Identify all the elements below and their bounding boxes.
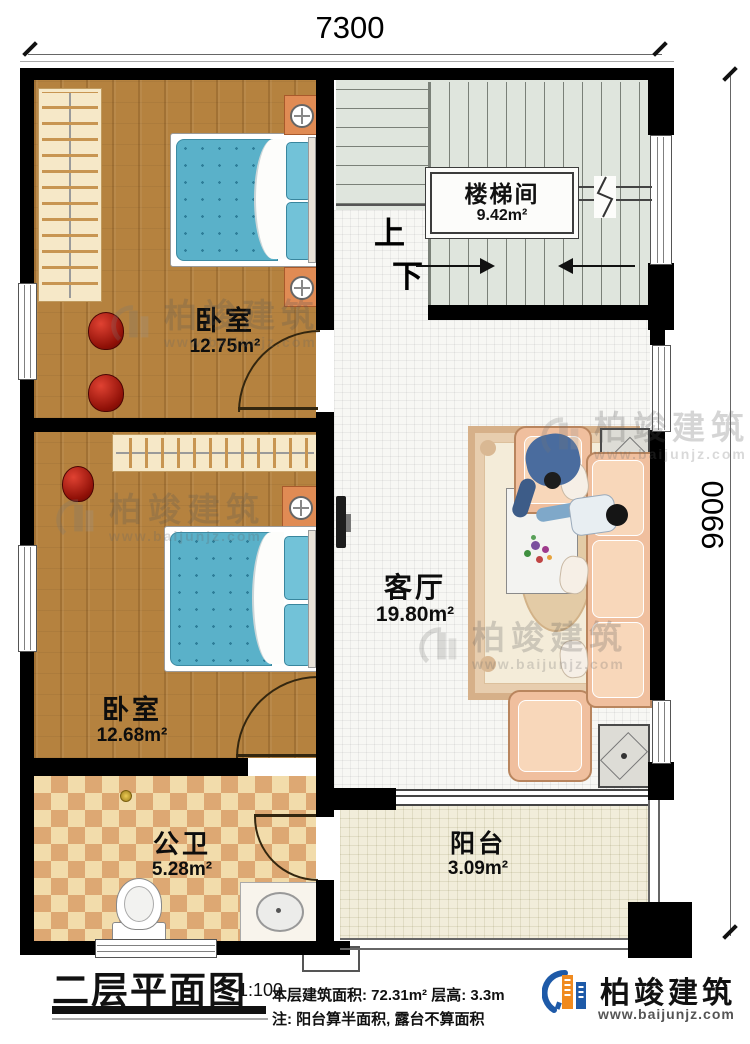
sliding-door xyxy=(396,789,648,806)
wall-pier xyxy=(648,762,674,800)
side-table xyxy=(598,724,650,788)
door-leaf xyxy=(236,754,316,757)
living-room-label: 客厅 19.80m² xyxy=(325,572,505,627)
armchair-seat xyxy=(518,700,582,772)
wardrobe xyxy=(112,434,318,472)
window xyxy=(650,135,672,265)
floorplan-canvas: 7300 9900 楼梯间 9.42m² 上 下 卧室 12 xyxy=(0,0,750,1044)
room-area: 12.75m² xyxy=(135,336,315,357)
side-table-center-dot xyxy=(621,753,627,759)
stool xyxy=(88,374,124,412)
room-area: 12.68m² xyxy=(42,725,222,746)
stair-direction-arrow-icon xyxy=(416,265,480,267)
stair-treads xyxy=(336,82,428,204)
stairwell-area: 9.42m² xyxy=(477,207,528,225)
room-area: 3.09m² xyxy=(388,858,568,879)
window xyxy=(18,283,37,380)
bed-sheet xyxy=(252,532,284,664)
room-area: 19.80m² xyxy=(325,603,505,627)
window xyxy=(652,345,671,432)
stair-landing-line xyxy=(336,204,430,206)
title-underline-thin xyxy=(52,1018,268,1020)
bed-headboard xyxy=(308,137,316,263)
window xyxy=(18,545,37,652)
floor-drain-icon xyxy=(120,790,132,802)
balcony-label: 阳台 3.09m² xyxy=(388,830,568,879)
stair-break-symbol-icon xyxy=(594,176,616,218)
lamp-icon xyxy=(290,276,314,300)
wall-segment xyxy=(20,68,34,283)
room-name: 公卫 xyxy=(92,830,272,859)
hanger-rail xyxy=(116,438,314,468)
stair-arrow-head-icon xyxy=(558,258,573,274)
column xyxy=(628,902,692,958)
wall-segment xyxy=(215,941,350,955)
window xyxy=(652,700,671,764)
flower-icon xyxy=(531,541,540,550)
wall-segment xyxy=(20,378,34,545)
sliding-door-track xyxy=(396,795,648,797)
wall-segment xyxy=(20,650,34,955)
dimension-width-label: 7300 xyxy=(280,10,420,46)
window xyxy=(95,939,217,958)
stool xyxy=(88,312,124,350)
build-area-info: 本层建筑面积: 72.31m² 层高: 3.3m xyxy=(272,984,505,1005)
wardrobe xyxy=(38,88,102,302)
bedroom-top-label: 卧室 12.75m² xyxy=(135,306,315,358)
carpet-rose-icon xyxy=(480,656,496,672)
door-leaf xyxy=(238,407,318,410)
build-area-note: 注: 阳台算半面积, 露台不算面积 xyxy=(272,1008,485,1029)
toilet-seat xyxy=(124,886,154,922)
room-name: 阳台 xyxy=(388,830,568,858)
brand-website: www.baijunjz.com xyxy=(598,1006,735,1022)
stool xyxy=(62,466,94,502)
wall-segment xyxy=(34,418,316,432)
wall-segment xyxy=(20,941,95,955)
room-name: 卧室 xyxy=(135,306,315,336)
wall-segment xyxy=(650,430,665,700)
hanger-rail xyxy=(42,92,98,298)
wall-segment xyxy=(20,68,674,80)
wall-segment xyxy=(428,305,652,320)
room-area: 5.28m² xyxy=(92,859,272,880)
wall-segment xyxy=(334,788,396,810)
stair-arrow-head-icon xyxy=(480,258,495,274)
stairwell-name: 楼梯间 xyxy=(465,181,540,207)
room-name: 卧室 xyxy=(42,695,222,725)
tv-bracket xyxy=(346,514,351,532)
stairwell-label-box: 楼梯间 9.42m² xyxy=(430,172,574,234)
bathroom-label: 公卫 5.28m² xyxy=(92,830,272,880)
armchair xyxy=(508,690,592,782)
lamp-icon xyxy=(289,496,313,520)
dimension-line-top xyxy=(28,54,662,55)
person-head-icon xyxy=(606,504,628,526)
wall-segment xyxy=(34,758,248,776)
outer-face-line xyxy=(20,61,674,62)
stair-direction-arrow-icon xyxy=(573,265,635,267)
carpet-rose-icon xyxy=(480,440,496,456)
person-head-icon xyxy=(544,472,561,489)
dimension-height-label: 9900 xyxy=(695,470,731,560)
bed-sheet xyxy=(254,139,286,259)
bed-headboard xyxy=(308,530,316,668)
tv xyxy=(336,496,346,548)
door-threshold xyxy=(248,758,316,776)
sofa-cushion xyxy=(592,540,644,618)
wall-pier xyxy=(648,68,674,135)
nightstand xyxy=(284,95,318,135)
wall-segment xyxy=(650,330,665,345)
lamp-icon xyxy=(290,104,314,128)
nightstand xyxy=(282,486,318,528)
brand-logo-icon xyxy=(542,966,594,1018)
door-threshold xyxy=(316,817,334,880)
nightstand xyxy=(284,267,318,307)
title-underline xyxy=(52,1006,266,1014)
sink-drain-icon xyxy=(276,908,281,913)
stair-up-label: 上 xyxy=(374,218,405,249)
balcony-railing xyxy=(340,938,628,950)
sofa-cushion xyxy=(592,622,644,698)
wall-segment xyxy=(316,880,334,941)
bedroom-bottom-label: 卧室 12.68m² xyxy=(42,695,222,747)
room-name: 客厅 xyxy=(325,572,505,603)
wall-segment xyxy=(316,80,334,330)
